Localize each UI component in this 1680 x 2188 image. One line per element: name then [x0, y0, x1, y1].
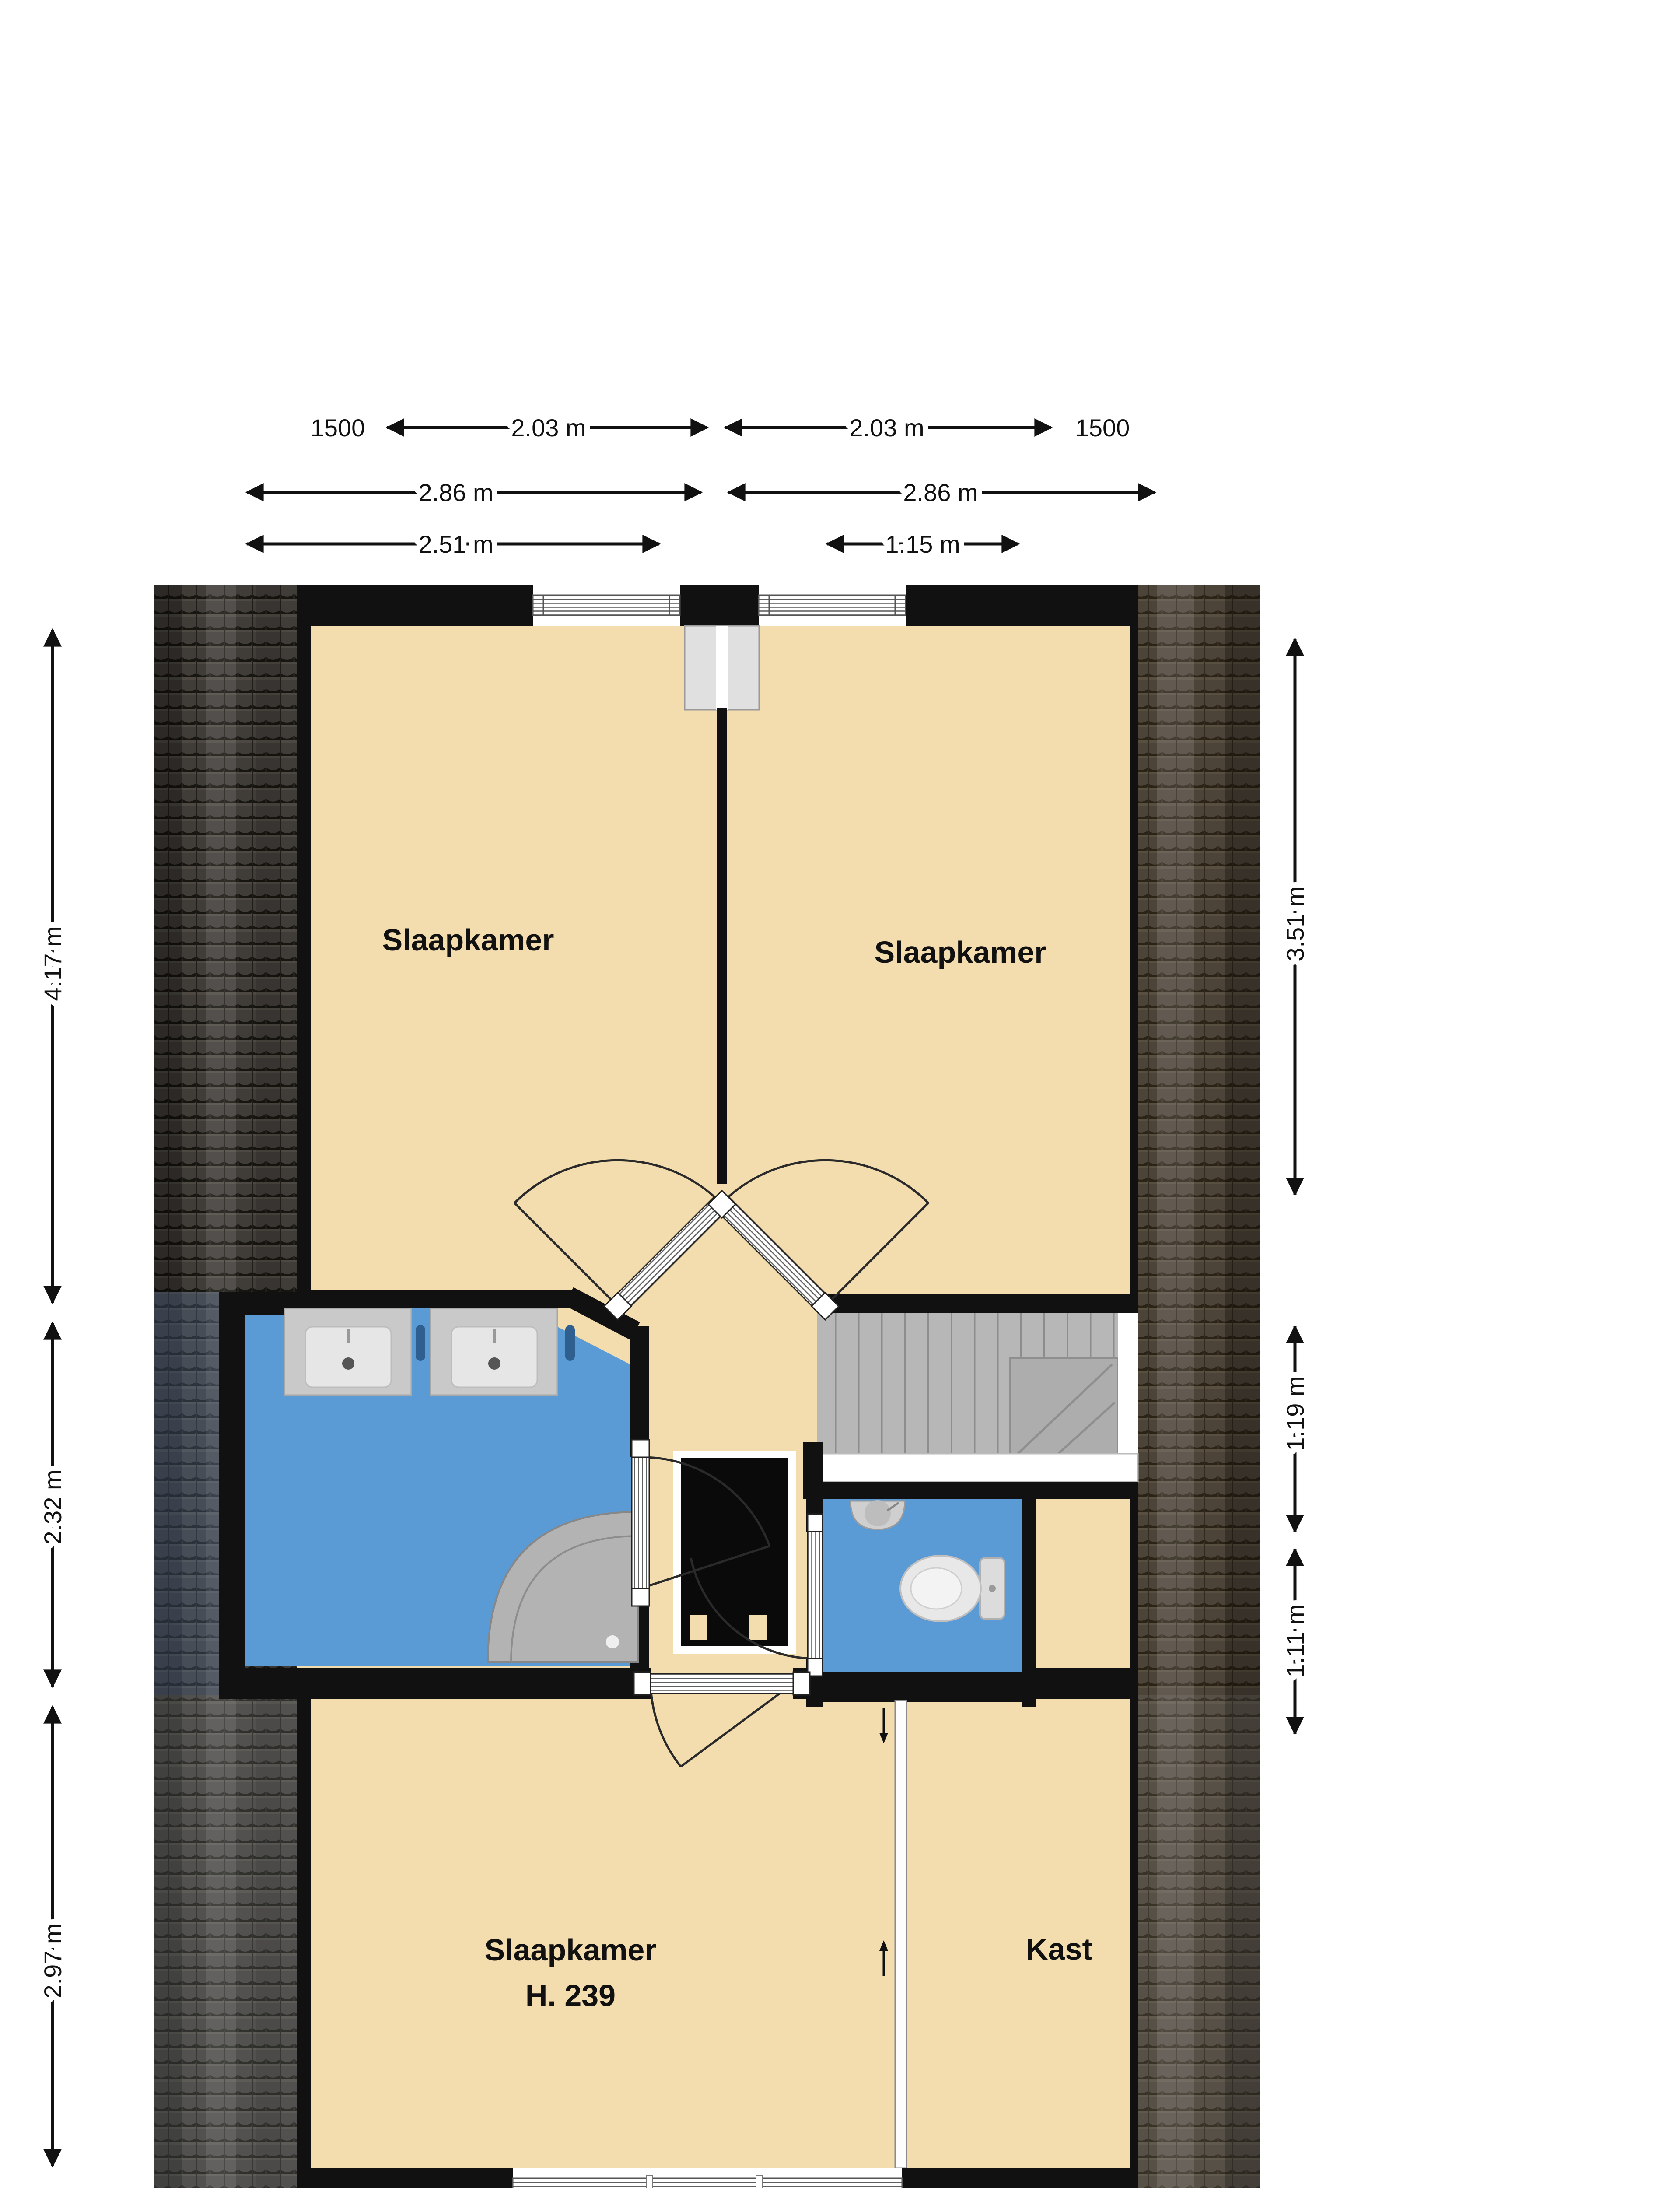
window-top-left — [533, 572, 680, 626]
door-leaf — [651, 1673, 793, 1694]
wall-stairs-top — [822, 1294, 1138, 1313]
stairs-open-side — [817, 1454, 1138, 1482]
vanity-sink-left — [284, 1308, 411, 1395]
wall-toilet-bottom — [806, 1672, 1036, 1702]
window-glass — [533, 595, 680, 615]
window-glass — [513, 2178, 902, 2188]
window-bottom — [513, 2168, 902, 2188]
dim-top-251: 2.51 m — [418, 530, 493, 558]
dim-right-119: 1.19 m — [1281, 1376, 1309, 1451]
wall-top — [297, 585, 1138, 626]
label-bedroom-top-right: Slaapkamer — [874, 935, 1046, 969]
dim-left-232: 2.32 m — [39, 1469, 66, 1544]
door-hinge — [808, 1514, 822, 1532]
window-top-right — [759, 572, 906, 626]
floorplan-canvas: 1500 2.03 m 2.03 m 1500 2.86 m 2.86 m 2.… — [0, 0, 1680, 2188]
wall-dormer-left — [219, 1292, 245, 1695]
faucet — [493, 1329, 496, 1343]
wall-bathroom-top — [297, 1290, 577, 1308]
window-mullion — [756, 2176, 762, 2188]
window-glass — [759, 595, 906, 615]
wall-bathroom-bottom — [219, 1668, 651, 1699]
dim-left-297: 2.97 m — [39, 1923, 66, 1998]
vanity-sink-right — [430, 1308, 557, 1395]
dim-right-111: 1.11 m — [1281, 1604, 1309, 1677]
void-block — [673, 1451, 796, 1654]
dim-top-1500-right: 1500 — [1075, 414, 1130, 442]
dim-left-417: 4.17 m — [39, 926, 66, 1001]
wall-bedroom-divider — [717, 708, 727, 1184]
door-hinge — [793, 1672, 810, 1695]
window-mullion — [647, 2176, 653, 2188]
chimney — [685, 626, 759, 710]
label-bedroom-top-left: Slaapkamer — [382, 923, 554, 957]
wall-left-edge-upper — [297, 626, 311, 1292]
wall-toilet-top — [806, 1482, 1138, 1499]
roof-dormer-tint — [154, 1292, 219, 1695]
dim-right-351: 3.51 m — [1281, 886, 1309, 961]
dim-top-203a: 2.03 m — [511, 414, 586, 442]
door-leaf — [808, 1532, 822, 1659]
label-closet: Kast — [1026, 1932, 1092, 1966]
wall-bathroom-right-upper — [630, 1326, 649, 1457]
door-hinge — [632, 1588, 649, 1606]
shower-drain — [606, 1635, 619, 1648]
drain — [342, 1357, 354, 1370]
dim-top-286a: 2.86 m — [418, 479, 493, 506]
roof-right — [1138, 585, 1260, 2188]
floorplan-page: 1500 2.03 m 2.03 m 1500 2.86 m 2.86 m 2.… — [0, 0, 1680, 2188]
wall-left-edge-lower — [297, 1695, 311, 2168]
door-hinge — [632, 1440, 649, 1457]
door-leaf — [632, 1457, 649, 1588]
dimensions-left: 4.17 m 2.32 m 2.97 m — [39, 630, 66, 2166]
dim-top-115: 1.15 m — [885, 530, 960, 558]
dimensions-top: 1500 2.03 m 2.03 m 1500 2.86 m 2.86 m 2.… — [247, 414, 1155, 558]
label-bedroom-bottom: Slaapkamer — [484, 1933, 656, 1967]
drain — [488, 1357, 500, 1370]
tap-left — [416, 1325, 425, 1361]
staircase — [803, 1313, 1138, 1499]
dimensions-right: 3.51 m 1.19 m 1.11 m — [1281, 639, 1309, 1734]
dim-top-1500-left: 1500 — [311, 414, 365, 442]
faucet — [346, 1329, 350, 1343]
tap-right — [565, 1325, 575, 1361]
dim-top-286b: 2.86 m — [903, 479, 978, 506]
label-bedroom-bottom-height: H. 239 — [525, 1978, 616, 2013]
dim-top-203b: 2.03 m — [849, 414, 924, 442]
door-hinge — [634, 1672, 651, 1695]
